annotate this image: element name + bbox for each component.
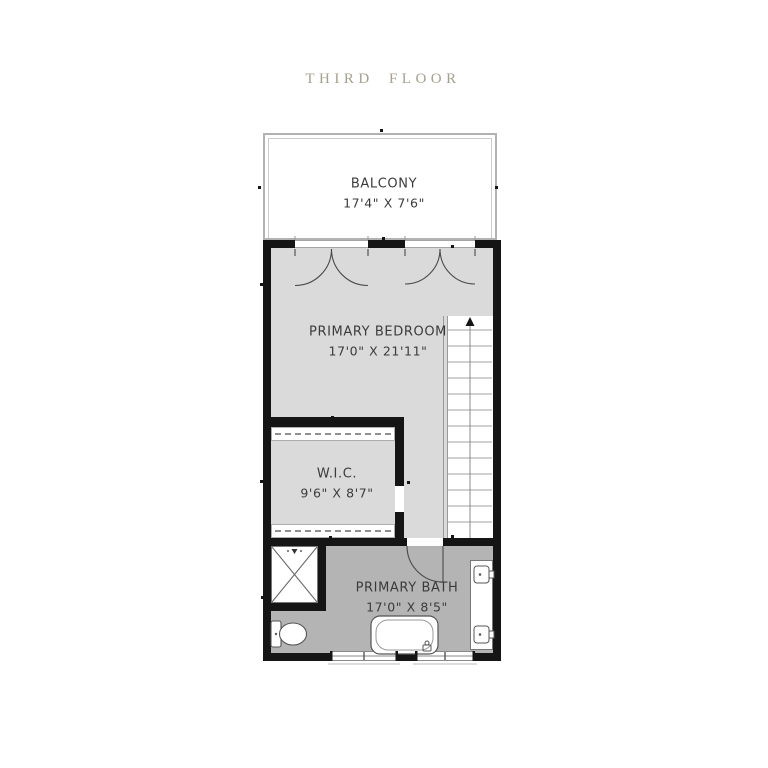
closet-rod-dashes	[275, 530, 391, 532]
shower	[271, 546, 318, 603]
wic-label: W.I.C. 9'6" X 8'7"	[300, 468, 373, 501]
vanity-counter	[470, 560, 493, 650]
closet-rod-bottom	[271, 524, 395, 538]
wic-door-opening	[395, 486, 404, 512]
window-left	[330, 651, 398, 661]
bath-label: PRIMARY BATH 17'0" X 8'5"	[356, 582, 459, 615]
balcony-label: BALCONY 17'4" X 7'6"	[343, 178, 425, 211]
bath-name: PRIMARY BATH	[356, 582, 459, 597]
floor-plan-page: THIRD FLOOR	[0, 0, 768, 768]
wic-wall-top	[263, 417, 404, 427]
window-right	[415, 651, 475, 661]
bath-dims: 17'0" X 8'5"	[356, 599, 459, 614]
bedroom-dims: 17'0" X 21'11"	[309, 343, 447, 358]
closet-rod-top	[271, 427, 395, 441]
bath-wall	[263, 538, 501, 546]
shower-wall-bottom	[263, 603, 326, 611]
bedroom-name: PRIMARY BEDROOM	[309, 326, 447, 341]
bedroom-label: PRIMARY BEDROOM 17'0" X 21'11"	[309, 326, 447, 359]
bath-door-opening	[407, 538, 443, 546]
balcony-dims: 17'4" X 7'6"	[343, 195, 425, 210]
balcony-name: BALCONY	[343, 178, 425, 193]
balcony-door-opening-left	[295, 240, 368, 248]
staircase	[447, 316, 493, 538]
balcony-door-opening-right	[405, 240, 475, 248]
wic-name: W.I.C.	[300, 468, 373, 483]
wic-wall-right	[395, 417, 404, 546]
shower-wall-right	[318, 546, 326, 611]
floor-plan: BALCONY 17'4" X 7'6" PRIMARY BEDROOM 17'…	[0, 0, 768, 768]
wic-dims: 9'6" X 8'7"	[300, 485, 373, 500]
closet-rod-dashes	[275, 433, 391, 435]
